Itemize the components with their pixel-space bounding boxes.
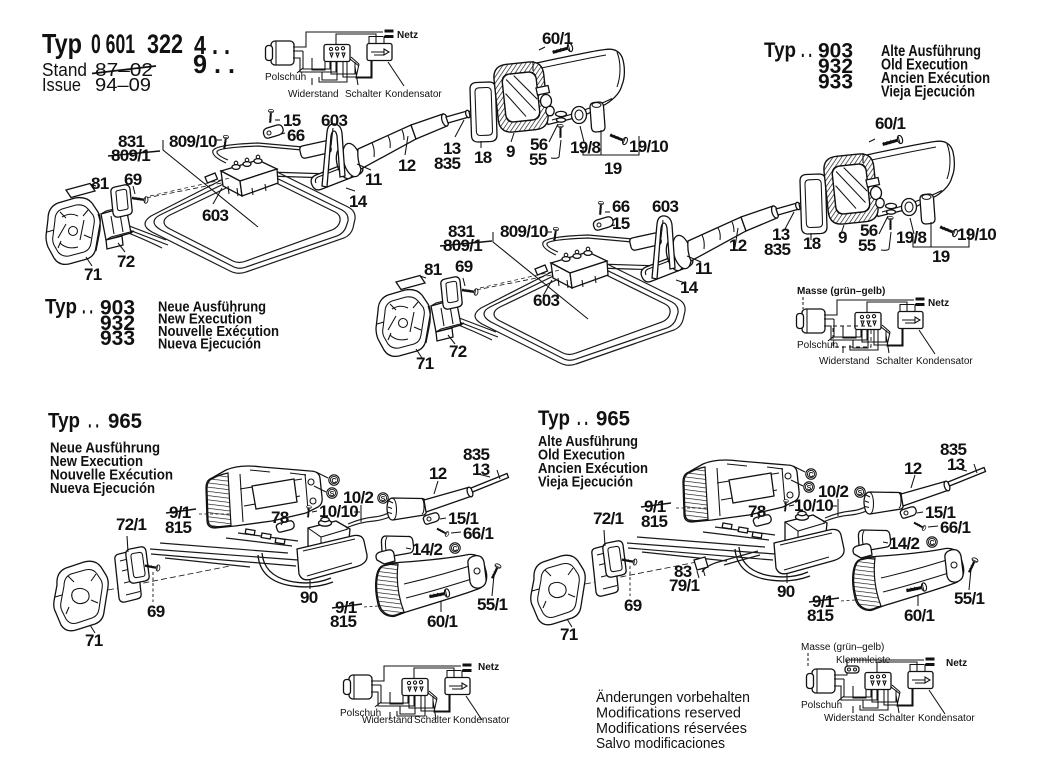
svg-text:71: 71 bbox=[85, 631, 103, 650]
svg-text:Typ: Typ bbox=[48, 410, 80, 433]
svg-text:. .: . . bbox=[88, 410, 99, 433]
svg-text:60/1: 60/1 bbox=[904, 606, 935, 625]
svg-text:90: 90 bbox=[777, 582, 795, 601]
svg-text:19: 19 bbox=[604, 159, 622, 178]
svg-text:9: 9 bbox=[506, 142, 515, 161]
svg-text:78: 78 bbox=[748, 502, 766, 521]
svg-text:71: 71 bbox=[416, 354, 434, 373]
svg-text:11: 11 bbox=[365, 170, 382, 189]
svg-text:14: 14 bbox=[680, 278, 699, 297]
svg-text:10/10: 10/10 bbox=[794, 496, 833, 515]
svg-text:Widerstand: Widerstand bbox=[362, 715, 413, 726]
svg-text:. .: . . bbox=[82, 296, 93, 319]
svg-text:Typ: Typ bbox=[538, 407, 570, 430]
svg-text:815: 815 bbox=[165, 518, 192, 537]
svg-text:Polschuh: Polschuh bbox=[265, 72, 306, 83]
svg-text:603: 603 bbox=[202, 206, 229, 225]
svg-text:66/1: 66/1 bbox=[463, 524, 494, 543]
svg-text:71: 71 bbox=[560, 625, 578, 644]
svg-text:Vieja Ejecución: Vieja Ejecución bbox=[881, 84, 975, 101]
svg-text:18: 18 bbox=[474, 148, 492, 167]
svg-text:60/1: 60/1 bbox=[427, 612, 458, 631]
svg-text:14/2: 14/2 bbox=[412, 540, 443, 559]
svg-text:Schalter: Schalter bbox=[414, 715, 451, 726]
svg-text:19/8: 19/8 bbox=[570, 138, 601, 157]
svg-text:72/1: 72/1 bbox=[593, 509, 624, 528]
svg-text:815: 815 bbox=[641, 512, 668, 531]
svg-text:835: 835 bbox=[434, 154, 461, 173]
svg-text:Kondensator: Kondensator bbox=[918, 713, 975, 724]
svg-text:Vieja Ejecución: Vieja Ejecución bbox=[538, 474, 633, 491]
svg-text:815: 815 bbox=[807, 606, 834, 625]
svg-text:Masse (grün–gelb): Masse (grün–gelb) bbox=[801, 642, 884, 653]
svg-text:19/8: 19/8 bbox=[896, 228, 927, 247]
svg-text:69: 69 bbox=[455, 257, 473, 276]
svg-text:Schalter: Schalter bbox=[878, 713, 915, 724]
svg-text:69: 69 bbox=[124, 170, 142, 189]
svg-text:809/10: 809/10 bbox=[169, 132, 217, 151]
svg-text:12: 12 bbox=[729, 236, 747, 255]
svg-text:Netz: Netz bbox=[946, 658, 967, 669]
svg-text:78: 78 bbox=[271, 508, 289, 527]
svg-text:72: 72 bbox=[117, 252, 135, 271]
svg-text:94–09: 94–09 bbox=[95, 75, 151, 95]
svg-text:Nueva Ejecución: Nueva Ejecución bbox=[50, 480, 155, 497]
svg-text:603: 603 bbox=[533, 291, 560, 310]
svg-text:Polschuh: Polschuh bbox=[797, 340, 838, 351]
svg-text:12: 12 bbox=[429, 464, 447, 483]
svg-text:Netz: Netz bbox=[928, 298, 949, 309]
svg-text:835: 835 bbox=[764, 240, 791, 259]
svg-text:Typ: Typ bbox=[764, 39, 796, 62]
svg-text:322: 322 bbox=[147, 29, 183, 59]
svg-text:18: 18 bbox=[803, 234, 821, 253]
svg-text:19/10: 19/10 bbox=[957, 225, 996, 244]
svg-text:9 . .: 9 . . bbox=[193, 49, 235, 79]
svg-text:603: 603 bbox=[652, 197, 679, 216]
svg-text:Kondensator: Kondensator bbox=[916, 356, 973, 367]
svg-text:809/10: 809/10 bbox=[500, 222, 548, 241]
svg-text:Issue: Issue bbox=[42, 75, 81, 95]
svg-text:19/10: 19/10 bbox=[629, 137, 668, 156]
svg-text:90: 90 bbox=[300, 588, 318, 607]
svg-text:15: 15 bbox=[612, 214, 630, 233]
svg-text:Kondensator: Kondensator bbox=[385, 89, 442, 100]
svg-text:13: 13 bbox=[947, 455, 965, 474]
svg-text:55/1: 55/1 bbox=[954, 589, 985, 608]
svg-text:14/2: 14/2 bbox=[889, 534, 920, 553]
svg-text:12: 12 bbox=[904, 459, 922, 478]
svg-text:965: 965 bbox=[596, 408, 630, 431]
svg-text:55/1: 55/1 bbox=[477, 595, 508, 614]
svg-text:12: 12 bbox=[398, 156, 416, 175]
svg-text:10/10: 10/10 bbox=[319, 502, 358, 521]
svg-text:Schalter: Schalter bbox=[345, 89, 382, 100]
svg-text:66/1: 66/1 bbox=[940, 518, 971, 537]
svg-text:603: 603 bbox=[321, 111, 348, 130]
svg-text:Widerstand: Widerstand bbox=[824, 713, 875, 724]
svg-text:815: 815 bbox=[330, 612, 357, 631]
svg-text:13: 13 bbox=[472, 460, 490, 479]
svg-text:55: 55 bbox=[529, 150, 547, 169]
svg-text:Netz: Netz bbox=[478, 662, 499, 673]
svg-text:0 601: 0 601 bbox=[91, 29, 135, 59]
svg-text:81: 81 bbox=[91, 174, 109, 193]
svg-text:72/1: 72/1 bbox=[116, 515, 147, 534]
svg-text:9: 9 bbox=[838, 228, 847, 247]
svg-text:Typ: Typ bbox=[45, 296, 77, 319]
svg-text:66: 66 bbox=[287, 126, 305, 145]
svg-text:69: 69 bbox=[624, 596, 642, 615]
svg-text:81: 81 bbox=[424, 260, 442, 279]
svg-text:Änderungen vorbehalten: Änderungen vorbehalten bbox=[596, 689, 750, 706]
svg-text:Masse (grün–gelb): Masse (grün–gelb) bbox=[797, 286, 885, 297]
svg-text:72: 72 bbox=[449, 342, 467, 361]
svg-text:Salvo modificaciones: Salvo modificaciones bbox=[596, 735, 725, 752]
svg-text:Nueva Ejecución: Nueva Ejecución bbox=[158, 336, 261, 353]
svg-text:Schalter: Schalter bbox=[876, 356, 913, 367]
svg-text:Klemmleiste: Klemmleiste bbox=[836, 655, 891, 666]
svg-text:79/1: 79/1 bbox=[669, 576, 700, 595]
svg-text:933: 933 bbox=[818, 71, 853, 94]
svg-text:Modifications reserved: Modifications reserved bbox=[596, 705, 741, 722]
svg-text:Kondensator: Kondensator bbox=[453, 715, 510, 726]
svg-text:60/1: 60/1 bbox=[875, 114, 906, 133]
svg-text:14: 14 bbox=[349, 192, 368, 211]
svg-text:933: 933 bbox=[100, 327, 135, 350]
svg-text:. .: . . bbox=[577, 407, 588, 430]
svg-text:11: 11 bbox=[695, 259, 712, 278]
svg-text:71: 71 bbox=[84, 265, 102, 284]
svg-text:60/1: 60/1 bbox=[542, 29, 573, 48]
svg-text:69: 69 bbox=[147, 602, 165, 621]
svg-text:. .: . . bbox=[801, 39, 812, 62]
svg-text:Widerstand: Widerstand bbox=[288, 89, 339, 100]
svg-text:19: 19 bbox=[932, 247, 950, 266]
svg-text:Typ: Typ bbox=[42, 28, 82, 59]
svg-text:Polschuh: Polschuh bbox=[801, 700, 842, 711]
svg-text:Widerstand: Widerstand bbox=[819, 356, 870, 367]
svg-text:965: 965 bbox=[108, 410, 142, 433]
svg-text:55: 55 bbox=[858, 236, 876, 255]
svg-text:Netz: Netz bbox=[397, 30, 418, 41]
